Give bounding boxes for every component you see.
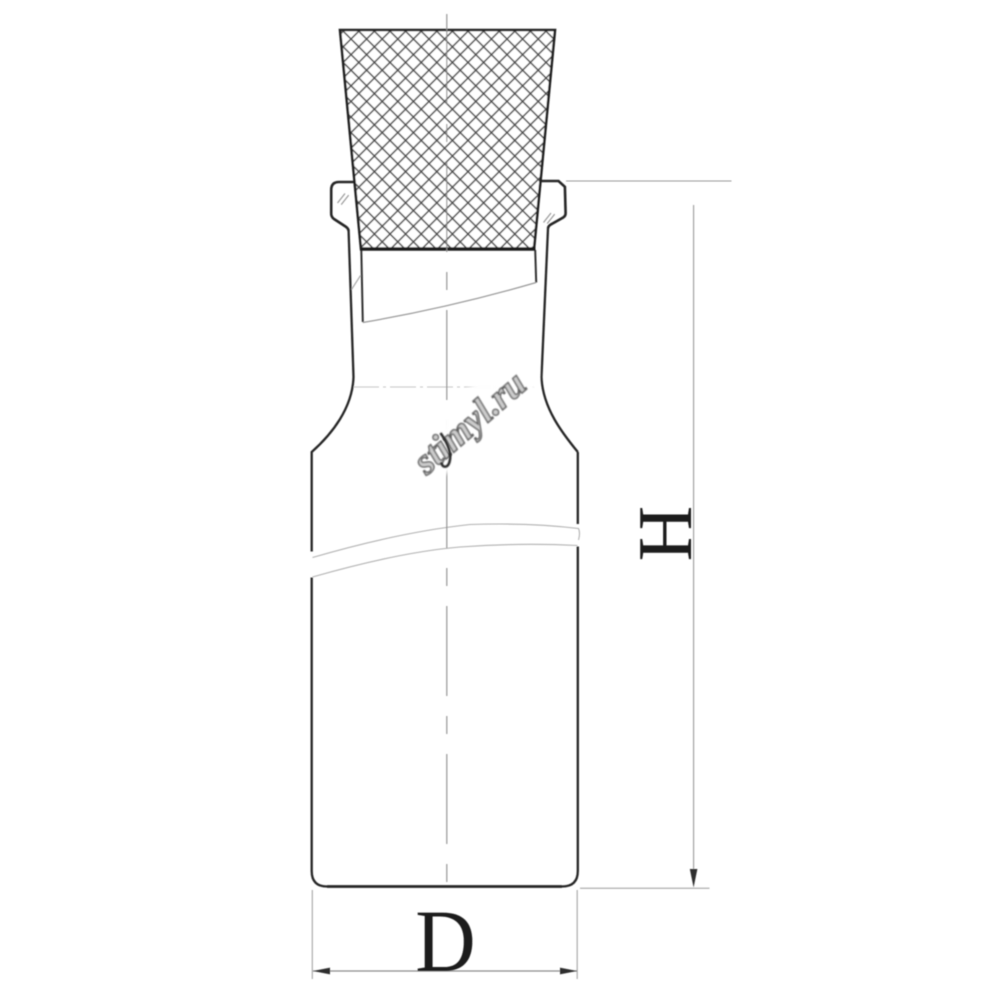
svg-text:H: H xyxy=(622,506,708,562)
svg-text:stimyl.ru: stimyl.ru xyxy=(405,363,534,483)
svg-text:D: D xyxy=(415,892,475,991)
